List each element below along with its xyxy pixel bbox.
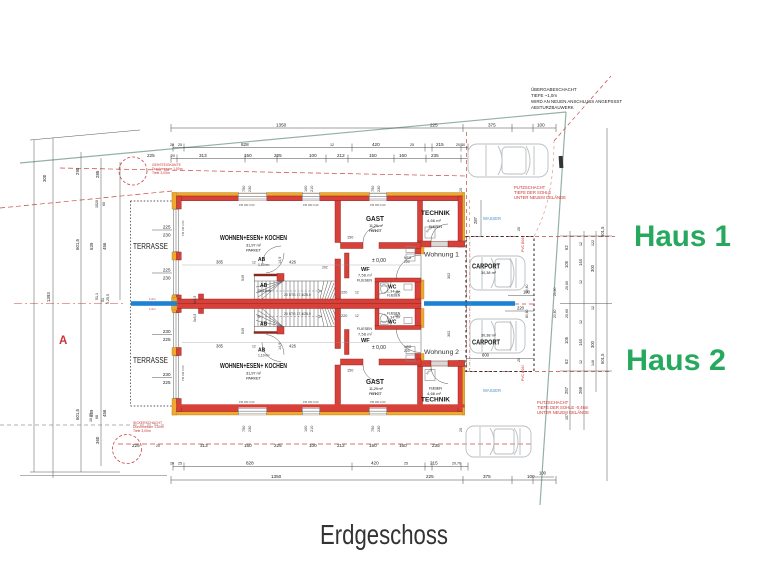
svg-text:225: 225 bbox=[163, 268, 171, 273]
svg-text:12: 12 bbox=[355, 314, 359, 318]
svg-text:828: 828 bbox=[241, 142, 249, 147]
svg-text:80,60: 80,60 bbox=[525, 284, 529, 293]
svg-text:62: 62 bbox=[564, 359, 569, 364]
svg-text:25: 25 bbox=[404, 462, 408, 466]
svg-text:549: 549 bbox=[241, 328, 245, 334]
svg-text:210: 210 bbox=[310, 186, 314, 192]
svg-text:PARKET: PARKET bbox=[369, 228, 383, 233]
svg-text:212: 212 bbox=[337, 443, 345, 448]
svg-text:Tiefe 3,00m: Tiefe 3,00m bbox=[152, 171, 170, 175]
svg-text:549: 549 bbox=[241, 275, 245, 281]
svg-text:51,1: 51,1 bbox=[95, 293, 99, 300]
svg-text:20,60: 20,60 bbox=[565, 281, 569, 290]
svg-text:PVC Ø160: PVC Ø160 bbox=[521, 365, 525, 381]
svg-text:20,30: 20,30 bbox=[456, 143, 465, 147]
svg-text:180: 180 bbox=[394, 314, 400, 318]
svg-text:302: 302 bbox=[447, 331, 451, 337]
svg-text:420: 420 bbox=[371, 461, 379, 466]
svg-text:WC: WC bbox=[388, 320, 397, 326]
svg-text:25: 25 bbox=[178, 462, 182, 466]
svg-text:PM RM 0,90: PM RM 0,90 bbox=[303, 203, 319, 207]
svg-text:68: 68 bbox=[95, 415, 99, 419]
svg-text:A: A bbox=[59, 335, 67, 347]
svg-text:230: 230 bbox=[248, 186, 252, 192]
svg-text:12: 12 bbox=[355, 291, 359, 295]
svg-text:PARKET: PARKET bbox=[246, 376, 262, 381]
svg-text:± 0,00: ± 0,00 bbox=[372, 345, 386, 351]
svg-text:235: 235 bbox=[431, 153, 439, 158]
svg-text:20: 20 bbox=[171, 154, 175, 158]
svg-text:5,25,5: 5,25,5 bbox=[106, 294, 110, 304]
svg-text:360: 360 bbox=[95, 436, 100, 444]
svg-text:220: 220 bbox=[404, 349, 410, 353]
svg-text:12: 12 bbox=[330, 143, 334, 147]
svg-text:122: 122 bbox=[591, 240, 595, 246]
svg-text:225: 225 bbox=[163, 380, 171, 385]
svg-text:20,70: 20,70 bbox=[452, 462, 461, 466]
svg-text:TERRASSE: TERRASSE bbox=[133, 356, 168, 365]
svg-text:PM KM 0,90: PM KM 0,90 bbox=[181, 220, 185, 236]
svg-text:WIRD AN NEUEN ANSCHLUSS ANGEPS: WIRD AN NEUEN ANSCHLUSS ANGEPSSST bbox=[531, 99, 622, 104]
svg-text:FLIESEN: FLIESEN bbox=[357, 327, 372, 331]
svg-text:302: 302 bbox=[447, 273, 451, 279]
svg-text:12: 12 bbox=[591, 306, 595, 310]
svg-text:5x5,5: 5x5,5 bbox=[193, 296, 197, 304]
svg-text:225: 225 bbox=[132, 443, 140, 448]
svg-text:375: 375 bbox=[483, 474, 491, 479]
svg-text:100: 100 bbox=[309, 153, 317, 158]
svg-text:225: 225 bbox=[430, 123, 438, 128]
svg-text:225: 225 bbox=[163, 337, 171, 342]
svg-text:GAST: GAST bbox=[366, 379, 385, 386]
svg-text:287: 287 bbox=[473, 216, 478, 224]
svg-text:UNTER NEUEM GELÄNDE: UNTER NEUEM GELÄNDE bbox=[537, 410, 589, 415]
svg-text:160: 160 bbox=[399, 443, 407, 448]
svg-text:10,75: 10,75 bbox=[89, 413, 93, 422]
svg-text:105: 105 bbox=[564, 260, 569, 268]
svg-text:225: 225 bbox=[426, 474, 434, 479]
svg-text:385: 385 bbox=[216, 260, 224, 265]
svg-text:1,10 m²: 1,10 m² bbox=[260, 289, 272, 293]
svg-text:1350: 1350 bbox=[276, 123, 287, 128]
svg-text:210: 210 bbox=[310, 426, 314, 432]
svg-text:20: 20 bbox=[170, 143, 174, 147]
svg-text:7,56 m²: 7,56 m² bbox=[358, 333, 373, 337]
svg-text:GAST: GAST bbox=[366, 216, 385, 223]
svg-text:12: 12 bbox=[579, 280, 583, 284]
svg-text:4,66 m²: 4,66 m² bbox=[427, 218, 442, 223]
svg-text:225: 225 bbox=[274, 443, 282, 448]
svg-text:144: 144 bbox=[578, 338, 583, 346]
svg-text:225: 225 bbox=[163, 225, 171, 230]
svg-text:ÜBERGABESCHACHT: ÜBERGABESCHACHT bbox=[531, 87, 577, 92]
svg-text:225: 225 bbox=[147, 153, 155, 158]
svg-text:14,9: 14,9 bbox=[278, 257, 282, 264]
svg-text:12: 12 bbox=[252, 261, 256, 265]
svg-text:TECHNIK: TECHNIK bbox=[421, 210, 451, 217]
svg-text:150: 150 bbox=[244, 153, 252, 158]
svg-text:150: 150 bbox=[347, 236, 353, 240]
svg-text:300: 300 bbox=[590, 264, 595, 272]
svg-text:150: 150 bbox=[369, 443, 377, 448]
svg-text:230: 230 bbox=[377, 186, 381, 192]
svg-text:PM RM 0,90: PM RM 0,90 bbox=[239, 203, 255, 207]
svg-text:426: 426 bbox=[289, 344, 297, 349]
svg-text:601,5: 601,5 bbox=[75, 238, 80, 250]
svg-text:20,60: 20,60 bbox=[553, 309, 557, 318]
svg-text:30,38 m²: 30,38 m² bbox=[481, 334, 497, 338]
svg-text:750: 750 bbox=[242, 426, 246, 432]
svg-text:456: 456 bbox=[102, 409, 107, 417]
svg-text:TECHNIK: TECHNIK bbox=[421, 397, 451, 404]
svg-text:375: 375 bbox=[488, 123, 496, 128]
svg-text:Wohnung 1: Wohnung 1 bbox=[424, 252, 460, 259]
svg-text:100: 100 bbox=[304, 186, 308, 192]
svg-text:PM RM 0,90: PM RM 0,90 bbox=[370, 400, 386, 404]
svg-text:230: 230 bbox=[163, 233, 171, 238]
svg-text:FLIESEN: FLIESEN bbox=[429, 387, 442, 391]
svg-text:601,5: 601,5 bbox=[600, 226, 605, 237]
svg-text:20: 20 bbox=[459, 188, 463, 192]
svg-text:180: 180 bbox=[394, 291, 400, 295]
svg-text:20,60: 20,60 bbox=[565, 309, 569, 318]
svg-text:420: 420 bbox=[372, 142, 380, 147]
svg-text:220: 220 bbox=[517, 306, 525, 311]
svg-text:212: 212 bbox=[337, 153, 345, 158]
svg-text:146: 146 bbox=[591, 360, 595, 366]
svg-text:ABSTURZBAUWERK: ABSTURZBAUWERK bbox=[531, 105, 574, 110]
svg-text:TERRASSE: TERRASSE bbox=[133, 242, 168, 251]
svg-text:PM RM 0,90: PM RM 0,90 bbox=[370, 203, 386, 207]
svg-text:PM RM 0,90: PM RM 0,90 bbox=[239, 400, 255, 404]
svg-text:230: 230 bbox=[377, 426, 381, 432]
svg-text:215: 215 bbox=[436, 142, 444, 147]
svg-text:80,60: 80,60 bbox=[525, 309, 529, 318]
svg-text:828: 828 bbox=[246, 461, 254, 466]
svg-text:144: 144 bbox=[578, 258, 583, 266]
svg-text:62: 62 bbox=[564, 245, 569, 250]
svg-text:100: 100 bbox=[304, 426, 308, 432]
svg-text:426: 426 bbox=[289, 260, 297, 265]
svg-text:WF: WF bbox=[361, 267, 370, 273]
svg-text:Tiefe 3,00m: Tiefe 3,00m bbox=[133, 429, 151, 433]
svg-text:20: 20 bbox=[170, 462, 174, 466]
svg-text:1,0m: 1,0m bbox=[149, 297, 156, 301]
svg-text:WOHNEN+ESEN+ KOCHEN: WOHNEN+ESEN+ KOCHEN bbox=[220, 233, 287, 242]
svg-text:230: 230 bbox=[248, 426, 252, 432]
svg-text:51: 51 bbox=[101, 298, 105, 302]
svg-text:12: 12 bbox=[579, 360, 583, 364]
svg-text:257: 257 bbox=[564, 386, 569, 394]
svg-text:600: 600 bbox=[482, 353, 490, 358]
svg-text:750: 750 bbox=[371, 426, 375, 432]
svg-text:750: 750 bbox=[242, 186, 246, 192]
svg-text:FLIESEN: FLIESEN bbox=[357, 279, 372, 283]
svg-text:20: 20 bbox=[156, 444, 160, 448]
svg-text:14,9: 14,9 bbox=[278, 343, 282, 350]
svg-text:UNTER NEUEM GELÄNDE: UNTER NEUEM GELÄNDE bbox=[514, 195, 566, 200]
svg-text:20,60: 20,60 bbox=[553, 287, 557, 296]
svg-text:290: 290 bbox=[75, 167, 80, 175]
svg-text:300: 300 bbox=[42, 174, 47, 182]
svg-text:601,5: 601,5 bbox=[75, 408, 80, 420]
svg-text:60: 60 bbox=[102, 202, 106, 206]
svg-text:150: 150 bbox=[369, 153, 377, 158]
svg-text:20 STG 17,4/28,0: 20 STG 17,4/28,0 bbox=[284, 312, 311, 316]
svg-text:7,56 m²: 7,56 m² bbox=[358, 274, 373, 278]
svg-text:220: 220 bbox=[341, 291, 347, 295]
svg-text:12: 12 bbox=[579, 320, 583, 324]
svg-text:157: 157 bbox=[565, 414, 569, 420]
svg-text:CARPORT: CARPORT bbox=[472, 340, 501, 347]
svg-text:WF: WF bbox=[361, 338, 370, 344]
svg-text:300: 300 bbox=[590, 340, 595, 348]
svg-text:5x5,5: 5x5,5 bbox=[193, 314, 197, 322]
svg-text:AB: AB bbox=[260, 322, 268, 328]
svg-text:WOHNEN+ESEN+ KOCHEN: WOHNEN+ESEN+ KOCHEN bbox=[220, 361, 287, 370]
svg-text:25: 25 bbox=[178, 143, 182, 147]
svg-text:Erdgeschoss: Erdgeschoss bbox=[320, 519, 448, 550]
svg-text:PM RM 0,90: PM RM 0,90 bbox=[303, 400, 319, 404]
svg-text:456: 456 bbox=[102, 242, 107, 250]
svg-text:1,0m: 1,0m bbox=[149, 307, 156, 311]
svg-text:1520: 1520 bbox=[95, 200, 99, 208]
svg-text:385: 385 bbox=[216, 344, 224, 349]
svg-text:25: 25 bbox=[410, 143, 414, 147]
svg-text:CARPORT: CARPORT bbox=[472, 264, 501, 271]
svg-text:20: 20 bbox=[517, 227, 521, 231]
svg-text:750: 750 bbox=[371, 186, 375, 192]
svg-text:215: 215 bbox=[430, 461, 438, 466]
svg-text:105: 105 bbox=[564, 336, 569, 344]
svg-text:230: 230 bbox=[163, 372, 171, 377]
svg-text:150: 150 bbox=[244, 443, 252, 448]
svg-text:160: 160 bbox=[399, 153, 407, 158]
svg-text:PM KM 0,90: PM KM 0,90 bbox=[181, 365, 185, 381]
svg-text:PARKET: PARKET bbox=[369, 391, 383, 396]
svg-text:TIEFE ~1,0m: TIEFE ~1,0m bbox=[531, 93, 557, 98]
svg-text:± 0,00: ± 0,00 bbox=[372, 258, 386, 264]
svg-text:150: 150 bbox=[347, 369, 353, 373]
svg-text:12: 12 bbox=[252, 345, 256, 349]
svg-text:202: 202 bbox=[322, 266, 328, 270]
svg-text:1393: 1393 bbox=[46, 292, 51, 302]
svg-text:220: 220 bbox=[341, 314, 347, 318]
svg-text:230: 230 bbox=[163, 329, 171, 334]
svg-text:539: 539 bbox=[89, 242, 94, 250]
svg-text:20: 20 bbox=[459, 428, 463, 432]
svg-text:Haus 2: Haus 2 bbox=[626, 344, 726, 377]
svg-text:30,38 m²: 30,38 m² bbox=[481, 271, 497, 275]
svg-text:1350: 1350 bbox=[271, 474, 282, 479]
svg-text:225: 225 bbox=[274, 153, 282, 158]
svg-text:WASSER: WASSER bbox=[483, 388, 501, 393]
svg-text:PVC Ø160: PVC Ø160 bbox=[521, 236, 525, 252]
svg-text:100: 100 bbox=[309, 443, 317, 448]
svg-text:1,10 m²: 1,10 m² bbox=[258, 354, 270, 358]
svg-text:4,66 m²: 4,66 m² bbox=[427, 391, 442, 396]
svg-text:Wohnung 2: Wohnung 2 bbox=[424, 349, 460, 356]
svg-text:220: 220 bbox=[404, 260, 410, 264]
svg-text:313: 313 bbox=[199, 153, 207, 158]
svg-text:285: 285 bbox=[95, 170, 100, 178]
svg-text:601,5: 601,5 bbox=[600, 353, 605, 364]
svg-text:100: 100 bbox=[537, 123, 545, 128]
svg-text:WASSER: WASSER bbox=[483, 216, 501, 221]
svg-text:Haus 1: Haus 1 bbox=[634, 220, 731, 253]
svg-text:PARKET: PARKET bbox=[246, 248, 262, 253]
svg-text:20 STG 17,4/28,0: 20 STG 17,4/28,0 bbox=[284, 293, 311, 297]
svg-text:100: 100 bbox=[527, 474, 535, 479]
svg-text:1,10 m²: 1,10 m² bbox=[258, 263, 270, 267]
svg-text:100: 100 bbox=[539, 471, 547, 476]
svg-text:12: 12 bbox=[579, 242, 583, 246]
svg-text:269: 269 bbox=[578, 386, 583, 394]
svg-text:235: 235 bbox=[432, 443, 440, 448]
svg-text:313: 313 bbox=[200, 443, 208, 448]
svg-text:230: 230 bbox=[163, 276, 171, 281]
